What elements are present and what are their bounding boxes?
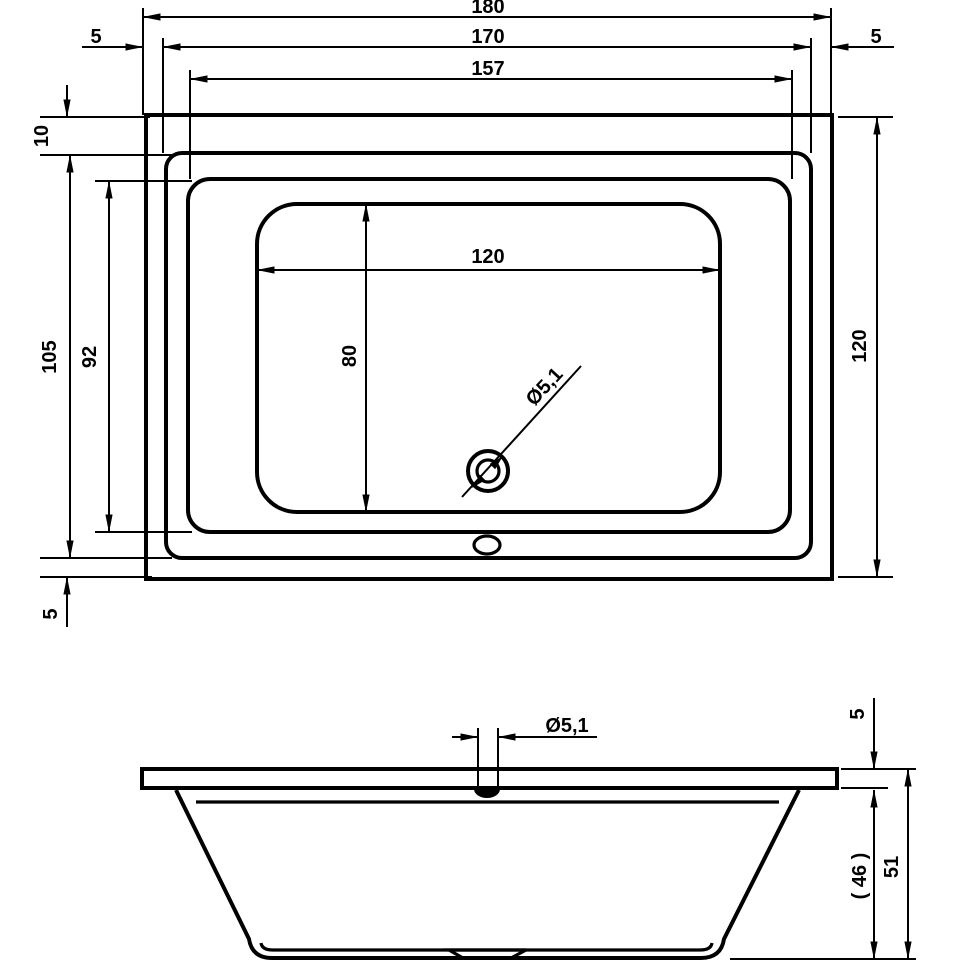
dim-label-105: 105 — [39, 340, 61, 373]
dim-label-46: ( 46 ) — [849, 853, 871, 900]
dim-label-51: 51 — [881, 856, 903, 878]
dim-label-5-side: 5 — [847, 708, 869, 719]
dim-label-5-right: 5 — [870, 26, 881, 48]
dim-label-5-bottom: 5 — [40, 608, 62, 619]
technical-drawing-canvas: Ø5,1 180 170 157 5 5 10 105 — [0, 0, 968, 970]
dim-label-10: 10 — [31, 125, 53, 147]
dim-label-5-left: 5 — [90, 26, 101, 48]
dim-label-170: 170 — [471, 26, 504, 48]
dim-label-157: 157 — [471, 58, 504, 80]
dim-label-120-basin: 120 — [471, 246, 504, 268]
bathtub-drawing-svg: Ø5,1 180 170 157 5 5 10 105 — [0, 0, 968, 970]
dim-label-120-right: 120 — [849, 329, 871, 362]
dim-label-80-basin: 80 — [339, 345, 361, 367]
dim-label-drain-diameter-side: Ø5,1 — [545, 715, 588, 737]
dim-label-92: 92 — [79, 346, 101, 368]
dim-label-180: 180 — [471, 0, 504, 18]
